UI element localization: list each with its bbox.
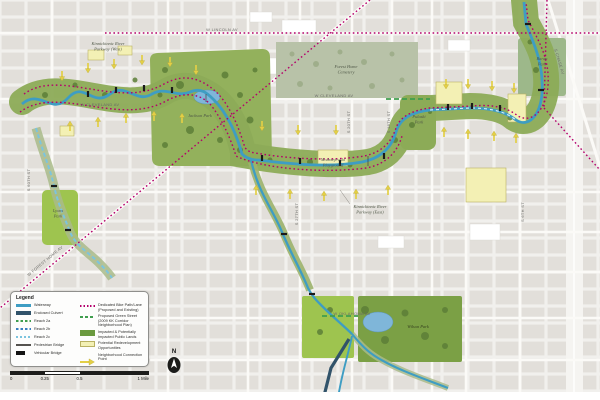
street-label: W LINCOLN AV [206, 27, 238, 32]
bike-path-line-icon [80, 305, 95, 307]
scale-tick: 1 Mile [138, 376, 149, 381]
waterway-line-icon [16, 304, 31, 307]
impacted-lands-swatch-icon [80, 330, 95, 336]
legend-item-pedestrian-bridge: Pedestrian Bridge [16, 343, 76, 348]
area-label: Park [414, 120, 425, 125]
area-label: Parkway (East) [355, 210, 384, 215]
green-street-line-icon [80, 316, 95, 319]
reach-2b-line-icon [16, 328, 31, 331]
scale-tick: 0.5 [77, 376, 83, 381]
area-label: Forest Home [334, 64, 358, 69]
area-label: Lyons [52, 208, 64, 213]
legend-item-redevelopment: Potential Redevelopment Opportunities [80, 341, 144, 350]
legend-item-green-street: Proposed Green Street (2009 KK Corridor … [80, 314, 144, 328]
area-label: Parkway (West) [93, 47, 122, 52]
street-label: W OKLAHOMA AV [333, 311, 370, 316]
map-page: W LINCOLN AV W CLEVELAND AV W CLEVELAND … [0, 0, 600, 400]
street-label: S 20TH ST [346, 111, 351, 134]
street-label: S 27TH ST [294, 203, 299, 226]
culvert-line-icon [16, 311, 31, 315]
legend-title: Legend [16, 295, 144, 301]
scale-tick: 0 [10, 376, 12, 381]
area-label: Modrzejewski [320, 157, 346, 162]
compass-north-icon [164, 355, 184, 375]
map-legend: Legend Waterway Enclosed Culvert Reach 2… [10, 291, 149, 367]
area-label: Park [53, 214, 64, 219]
legend-item-enclosed-culvert: Enclosed Culvert [16, 311, 76, 316]
connection-arrow-icon [80, 353, 95, 361]
reach-2a-line-icon [16, 320, 31, 323]
street-label: W CLEVELAND AV [315, 93, 354, 98]
area-label: Kinnickinnic River [90, 41, 124, 46]
pedestrian-bridge-icon [16, 344, 31, 345]
legend-item-waterway: Waterway [16, 303, 76, 308]
area-label: Jackson Park [188, 113, 213, 118]
legend-item-connection-point: Neighborhood Connection Point [80, 353, 144, 362]
legend-item-vehicular-bridge: Vehicular Bridge [16, 351, 76, 356]
north-arrow: N [163, 349, 185, 380]
vehicular-bridge-icon [16, 351, 25, 355]
legend-item-impacted-lands: Impacted & Potentially Impacted Public L… [80, 330, 144, 339]
area-label: Pulaski [411, 114, 426, 119]
street-label: S 60TH ST [26, 169, 31, 192]
redevelopment-swatch-icon [80, 341, 95, 347]
legend-item-bike-path: Dedicated Bike Path/Lane (Proposed and E… [80, 303, 144, 312]
legend-item-reach-2c: Reach 2c [16, 335, 76, 340]
area-label: Cemetery [338, 70, 355, 75]
legend-item-reach-2a: Reach 2a [16, 319, 76, 324]
legend-item-reach-2b: Reach 2b [16, 327, 76, 332]
scale-bar: 0 0.25 0.5 1 Mile [10, 371, 149, 382]
street-label: W CLEVELAND AV [81, 102, 120, 107]
street-label: S 16TH ST [386, 111, 391, 134]
area-label: Playground [322, 163, 344, 168]
scale-tick: 0.25 [41, 376, 49, 381]
area-label: Park [537, 62, 548, 67]
area-label: Wilson Park [407, 324, 430, 329]
reach-2c-line-icon [16, 336, 31, 339]
street-label: S 6TH ST [520, 202, 525, 222]
area-label: Kinnickinnic River [352, 204, 386, 209]
area-label: Baran [537, 56, 549, 61]
